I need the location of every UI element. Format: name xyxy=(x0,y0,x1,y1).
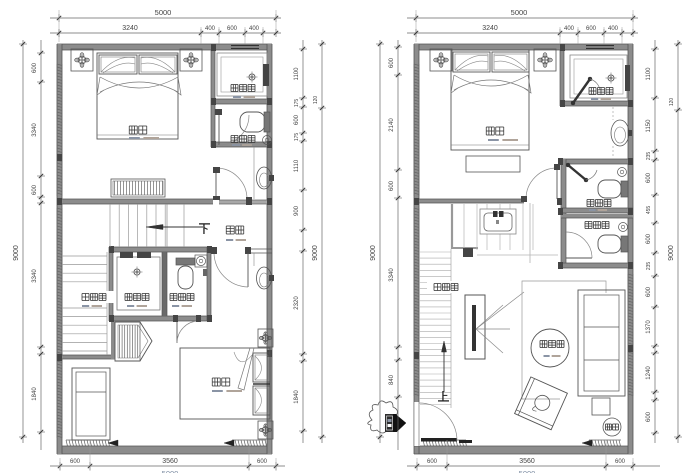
svg-text:1370: 1370 xyxy=(646,320,652,334)
svg-text:840: 840 xyxy=(389,374,395,385)
svg-text:600: 600 xyxy=(586,26,597,32)
svg-text:400: 400 xyxy=(608,26,619,32)
svg-text:2320: 2320 xyxy=(294,296,300,310)
svg-text:3340: 3340 xyxy=(32,269,38,283)
svg-text:600: 600 xyxy=(70,459,81,465)
svg-text:600: 600 xyxy=(389,180,395,191)
svg-text:600: 600 xyxy=(257,459,268,465)
svg-text:175: 175 xyxy=(294,99,300,108)
svg-text:1100: 1100 xyxy=(294,67,300,81)
svg-text:5000: 5000 xyxy=(519,469,536,473)
svg-text:3240: 3240 xyxy=(482,25,498,32)
svg-text:600: 600 xyxy=(294,114,300,125)
svg-text:3340: 3340 xyxy=(32,123,38,137)
svg-text:600: 600 xyxy=(427,459,438,465)
svg-text:1100: 1100 xyxy=(646,67,652,81)
svg-text:400: 400 xyxy=(564,26,575,32)
svg-text:400: 400 xyxy=(205,26,216,32)
svg-text:455: 455 xyxy=(646,206,652,215)
svg-text:9000: 9000 xyxy=(668,245,675,261)
svg-text:1150: 1150 xyxy=(646,119,652,133)
svg-text:235: 235 xyxy=(646,152,652,161)
svg-text:600: 600 xyxy=(615,459,626,465)
svg-text:600: 600 xyxy=(646,172,652,183)
svg-text:1840: 1840 xyxy=(294,390,300,404)
svg-text:1240: 1240 xyxy=(646,366,652,380)
svg-text:600: 600 xyxy=(646,411,652,422)
svg-text:235: 235 xyxy=(646,262,652,271)
svg-text:1840: 1840 xyxy=(32,387,38,401)
svg-text:175: 175 xyxy=(294,133,300,142)
svg-text:120: 120 xyxy=(669,98,675,107)
svg-text:5000: 5000 xyxy=(511,8,528,17)
svg-text:600: 600 xyxy=(389,57,395,68)
svg-text:9000: 9000 xyxy=(13,245,20,261)
svg-text:3340: 3340 xyxy=(389,268,395,282)
svg-text:3560: 3560 xyxy=(162,458,178,465)
svg-text:400: 400 xyxy=(249,26,260,32)
svg-text:600: 600 xyxy=(227,26,238,32)
svg-text:600: 600 xyxy=(646,286,652,297)
svg-text:600: 600 xyxy=(32,184,38,195)
svg-text:2140: 2140 xyxy=(389,118,395,132)
svg-text:120: 120 xyxy=(313,96,319,105)
svg-text:5000: 5000 xyxy=(155,8,172,17)
svg-text:900: 900 xyxy=(294,205,300,216)
svg-text:600: 600 xyxy=(32,62,38,73)
svg-text:1110: 1110 xyxy=(294,159,300,172)
svg-text:3240: 3240 xyxy=(122,25,138,32)
svg-text:3560: 3560 xyxy=(519,458,535,465)
svg-text:9000: 9000 xyxy=(312,245,319,261)
svg-text:600: 600 xyxy=(646,233,652,244)
svg-text:5000: 5000 xyxy=(162,469,179,473)
svg-text:9000: 9000 xyxy=(370,245,377,261)
